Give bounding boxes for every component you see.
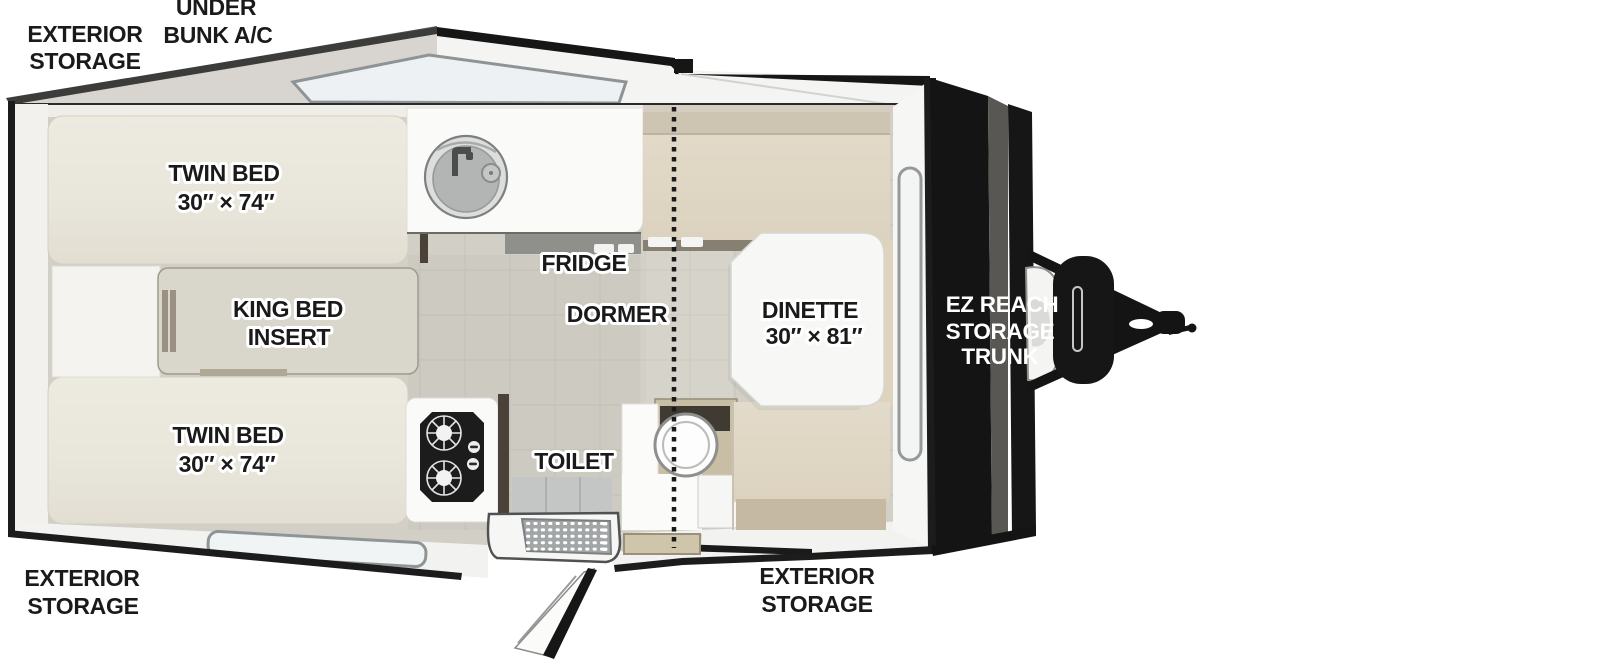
svg-text:TRUNK: TRUNK	[961, 344, 1039, 369]
svg-text:STORAGE: STORAGE	[29, 48, 140, 74]
svg-text:30″ × 74″: 30″ × 74″	[178, 189, 275, 215]
svg-text:TOILET: TOILET	[534, 448, 614, 474]
svg-text:STORAGE: STORAGE	[27, 593, 138, 619]
svg-text:KING BED: KING BED	[233, 296, 343, 322]
svg-text:EXTERIOR: EXTERIOR	[759, 563, 875, 589]
svg-text:INSERT: INSERT	[248, 324, 331, 350]
svg-text:TWIN BED: TWIN BED	[172, 422, 283, 448]
svg-text:STORAGE: STORAGE	[761, 591, 872, 617]
svg-text:EZ REACH: EZ REACH	[946, 292, 1059, 317]
svg-text:STORAGE: STORAGE	[946, 319, 1055, 344]
svg-text:DINETTE: DINETTE	[762, 297, 858, 323]
svg-text:EXTERIOR: EXTERIOR	[24, 565, 140, 591]
svg-text:DORMER: DORMER	[567, 301, 668, 327]
svg-text:30″ × 74″: 30″ × 74″	[179, 451, 276, 477]
svg-text:BUNK A/C: BUNK A/C	[163, 22, 272, 48]
svg-text:FRIDGE: FRIDGE	[541, 250, 626, 276]
svg-text:UNDER: UNDER	[176, 0, 257, 20]
svg-text:30″ × 81″: 30″ × 81″	[766, 323, 863, 349]
svg-text:TWIN BED: TWIN BED	[168, 160, 279, 186]
svg-text:EXTERIOR: EXTERIOR	[27, 21, 143, 47]
